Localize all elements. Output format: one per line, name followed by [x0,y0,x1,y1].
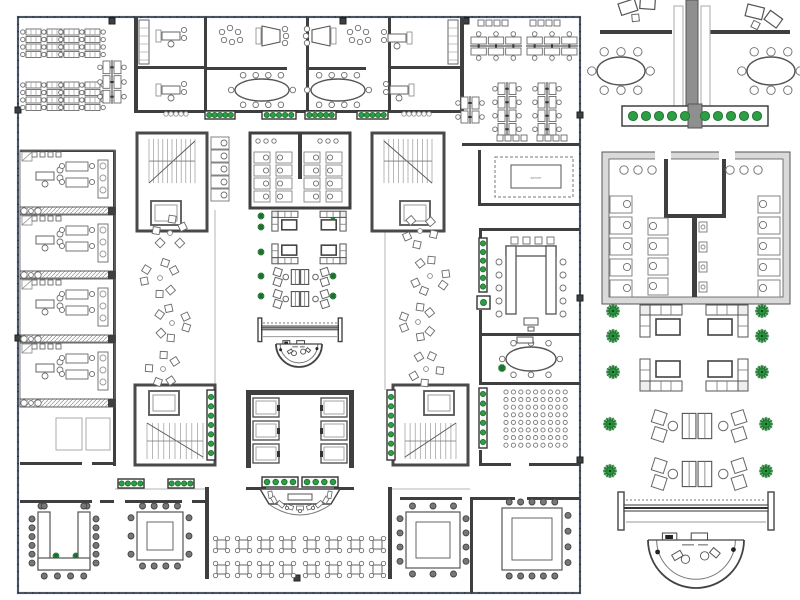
cafe-tables [213,536,385,577]
reception-desk [648,533,744,588]
main-plan: server [15,17,583,593]
reception-desk [276,341,322,367]
presentation-desk [256,26,336,46]
informal-seating [219,25,370,44]
locker-column [211,137,229,201]
shelving [139,20,458,64]
sofa-groups [640,305,748,391]
planter-boxes [622,104,768,128]
toilet-block [250,133,350,208]
bench [258,318,342,342]
room-label: server [530,175,542,180]
bench [618,492,774,530]
auditorium-seating [504,390,567,447]
detail-panel [588,0,800,588]
sofa-groups [272,211,346,264]
lounge-seating-rows [651,410,747,491]
server-room-label: server [530,175,542,180]
elevator-bank [246,390,354,468]
stage-desk [260,489,340,515]
floor-plan: server [0,0,800,600]
u-conference-table [496,237,566,317]
toilet-block-detail [602,150,790,304]
lounge-seating-rows [273,267,329,308]
floor-plan-canvas: server [0,0,800,600]
desk-cluster-group [21,29,106,111]
